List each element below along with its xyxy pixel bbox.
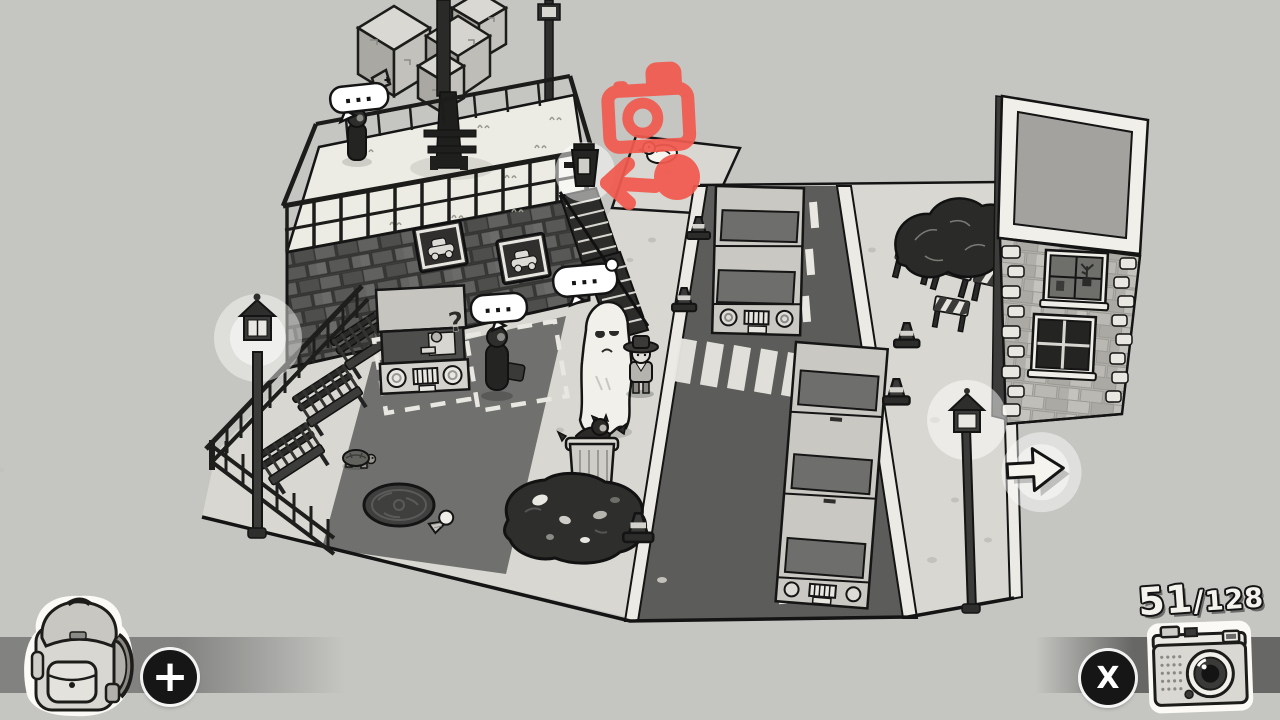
trash-pile	[505, 473, 646, 563]
parking-sign	[496, 233, 551, 285]
camera-lens	[1187, 650, 1235, 698]
parking-sign	[413, 221, 468, 273]
svg-text:...: ...	[482, 292, 515, 319]
right-building	[992, 96, 1148, 424]
photo-count-current: 51	[1137, 576, 1195, 624]
plus-icon: +	[152, 652, 189, 702]
game-scene: ...	[0, 0, 1280, 720]
camera-open-button[interactable]: X	[1081, 651, 1135, 705]
svg-text:...: ...	[568, 264, 601, 292]
window-dark	[1028, 314, 1099, 380]
tutorial-indicators	[606, 64, 700, 203]
svg-text:...: ...	[342, 81, 376, 109]
backpack-open-button[interactable]: +	[143, 650, 197, 704]
backpack-icon[interactable]	[22, 592, 137, 718]
road-truck-top	[712, 186, 804, 335]
manhole-cover	[364, 484, 434, 526]
window-plant	[1040, 250, 1111, 310]
red-camera-icon	[606, 64, 690, 148]
road-truck-long	[776, 342, 888, 608]
red-dot-indicator	[654, 154, 700, 200]
x-button-label: X	[1096, 661, 1119, 696]
game-screen: ...	[0, 0, 1280, 720]
photo-count-total: 128	[1204, 582, 1265, 617]
camera-hud-icon[interactable]	[1144, 612, 1255, 716]
parked-truck	[376, 285, 469, 393]
tree-trunk	[437, 0, 450, 96]
question-mark: ?	[446, 306, 465, 338]
